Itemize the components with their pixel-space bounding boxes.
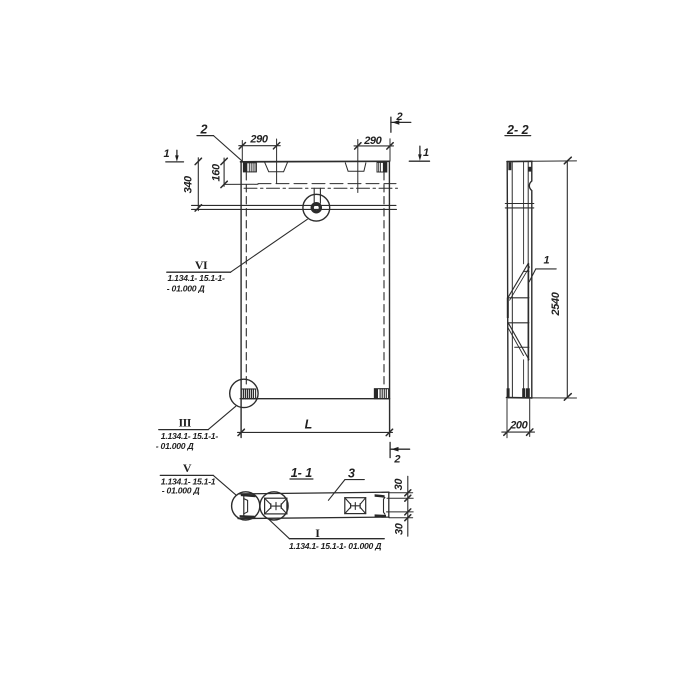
svg-text:III: III bbox=[178, 415, 191, 429]
svg-text:1: 1 bbox=[423, 147, 429, 159]
svg-text:340: 340 bbox=[183, 175, 195, 193]
svg-text:30: 30 bbox=[393, 478, 405, 491]
svg-text:1- 1: 1- 1 bbox=[291, 466, 313, 480]
svg-text:30: 30 bbox=[394, 522, 406, 535]
svg-text:L: L bbox=[305, 417, 313, 431]
svg-text:2- 2: 2- 2 bbox=[506, 123, 529, 137]
svg-text:- 01.000 Д: - 01.000 Д bbox=[167, 283, 205, 293]
svg-text:V: V bbox=[183, 461, 192, 475]
svg-text:1.134.1- 15.1-1- 01.000 Д: 1.134.1- 15.1-1- 01.000 Д bbox=[289, 541, 381, 551]
svg-text:290: 290 bbox=[363, 135, 382, 147]
svg-text:- 01.000 Д: - 01.000 Д bbox=[156, 441, 194, 451]
svg-text:160: 160 bbox=[210, 163, 222, 181]
svg-text:3: 3 bbox=[348, 466, 355, 480]
svg-text:- 01.000 Д: - 01.000 Д bbox=[162, 485, 200, 495]
svg-text:200: 200 bbox=[509, 420, 528, 432]
svg-text:VI: VI bbox=[195, 258, 208, 272]
svg-text:290: 290 bbox=[249, 133, 268, 145]
svg-text:2540: 2540 bbox=[550, 291, 562, 316]
svg-text:2: 2 bbox=[395, 111, 402, 123]
svg-text:1: 1 bbox=[163, 148, 169, 160]
svg-text:2: 2 bbox=[200, 123, 208, 137]
svg-text:1: 1 bbox=[543, 254, 549, 266]
svg-text:2: 2 bbox=[393, 453, 400, 465]
svg-text:1.134.1- 15.1-1-: 1.134.1- 15.1-1- bbox=[168, 273, 226, 283]
svg-text:1.134.1- 15.1-1-: 1.134.1- 15.1-1- bbox=[161, 431, 219, 441]
